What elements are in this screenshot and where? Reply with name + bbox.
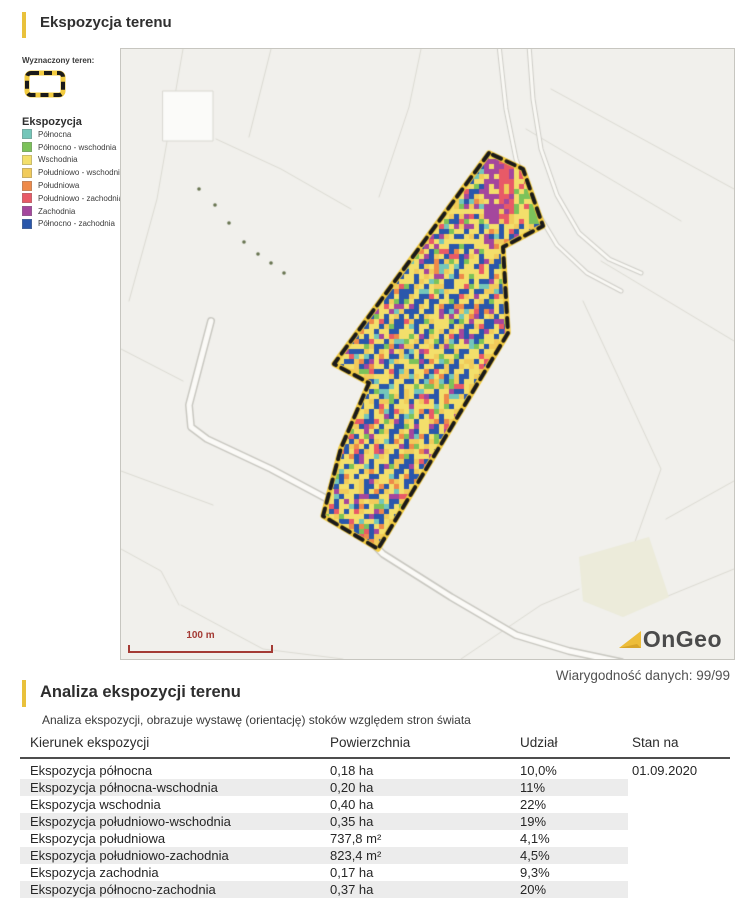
exposure-table: Kierunek ekspozycji Powierzchnia Udział … [20, 733, 730, 898]
legend-item: Północna [22, 128, 118, 141]
legend-item-label: Północno - zachodnia [38, 219, 115, 228]
scale-bar: 100 m [128, 645, 273, 653]
report-page: Ekspozycja terenu Wyznaczony teren: Eksp… [0, 0, 750, 922]
table-row: Ekspozycja zachodnia0,17 ha9,3% [20, 864, 730, 881]
ongeo-logo-text: OnGeo [643, 627, 722, 651]
column-header-share: Udział [520, 735, 558, 750]
legend-item-label: Wschodnia [38, 155, 78, 164]
table-row: Ekspozycja północna0,18 ha10,0%01.09.202… [20, 762, 730, 779]
cell-share: 10,0% [520, 762, 557, 779]
cell-share: 11% [520, 779, 545, 796]
cell-share: 4,5% [520, 847, 550, 864]
section-subtitle: Analiza ekspozycji, obrazuje wystawę (or… [42, 713, 471, 727]
legend-color-swatch [22, 219, 32, 229]
legend-color-swatch [22, 181, 32, 191]
legend-item: Północno - zachodnia [22, 218, 118, 231]
scale-bar-label: 100 m [130, 630, 271, 641]
legend-color-swatch [22, 129, 32, 139]
legend-item-label: Południowo - zachodnia [38, 194, 123, 203]
cell-area: 0,20 ha [330, 779, 373, 796]
table-row: Ekspozycja południowa737,8 m²4,1% [20, 830, 730, 847]
designated-area-label: Wyznaczony teren: [22, 56, 118, 65]
table-row: Ekspozycja wschodnia0,40 ha22% [20, 796, 730, 813]
cell-area: 0,35 ha [330, 813, 373, 830]
cell-as_of: 01.09.2020 [632, 762, 697, 779]
cell-area: 0,17 ha [330, 864, 373, 881]
title-accent-bar [22, 12, 26, 38]
data-reliability: Wiarygodność danych: 99/99 [556, 668, 730, 683]
ongeo-logo-icon [617, 627, 643, 651]
legend-color-swatch [22, 155, 32, 165]
legend-color-swatch [22, 142, 32, 152]
legend-item-label: Południowo - wschodnia [38, 168, 124, 177]
cell-area: 0,37 ha [330, 881, 373, 898]
cell-direction: Ekspozycja północna-wschodnia [30, 779, 218, 796]
legend-items: PółnocnaPółnocno - wschodniaWschodniaPoł… [22, 128, 118, 230]
legend-item: Północno - wschodnia [22, 141, 118, 154]
legend-item: Wschodnia [22, 154, 118, 167]
cell-direction: Ekspozycja północna [30, 762, 152, 779]
page-title: Ekspozycja terenu [40, 14, 172, 31]
legend-item-label: Południowa [38, 181, 79, 190]
column-header-area: Powierzchnia [330, 735, 410, 750]
cell-area: 737,8 m² [330, 830, 381, 847]
legend-color-swatch [22, 206, 32, 216]
section-accent-bar [22, 680, 26, 707]
legend-item: Południowo - wschodnia [22, 166, 118, 179]
legend-item-label: Zachodnia [38, 207, 75, 216]
table-row: Ekspozycja południowo-zachodnia823,4 m²4… [20, 847, 730, 864]
table-row: Ekspozycja północna-wschodnia0,20 ha11% [20, 779, 730, 796]
ongeo-logo: OnGeo [617, 627, 722, 651]
legend-item-label: Północno - wschodnia [38, 143, 116, 152]
cell-direction: Ekspozycja północno-zachodnia [30, 881, 216, 898]
table-row: Ekspozycja północno-zachodnia0,37 ha20% [20, 881, 730, 898]
cell-share: 20% [520, 881, 546, 898]
cell-direction: Ekspozycja zachodnia [30, 864, 159, 881]
cell-share: 9,3% [520, 864, 550, 881]
table-row: Ekspozycja południowo-wschodnia0,35 ha19… [20, 813, 730, 830]
cell-area: 0,40 ha [330, 796, 373, 813]
column-header-asof: Stan na [632, 735, 679, 750]
cell-share: 22% [520, 796, 546, 813]
legend-title: Ekspozycja [22, 116, 118, 128]
legend-item: Zachodnia [22, 205, 118, 218]
table-header: Kierunek ekspozycji Powierzchnia Udział … [20, 733, 730, 759]
cell-direction: Ekspozycja południowo-wschodnia [30, 813, 231, 830]
designated-area-icon [22, 68, 68, 100]
legend-item: Południowa [22, 179, 118, 192]
cell-share: 19% [520, 813, 546, 830]
cell-share: 4,1% [520, 830, 550, 847]
cell-direction: Ekspozycja wschodnia [30, 796, 161, 813]
cell-direction: Ekspozycja południowa [30, 830, 165, 847]
cell-area: 823,4 m² [330, 847, 381, 864]
map-canvas [121, 49, 734, 659]
map-legend: Wyznaczony teren: Ekspozycja PółnocnaPół… [22, 56, 118, 230]
section-title: Analiza ekspozycji terenu [40, 683, 241, 702]
cell-area: 0,18 ha [330, 762, 373, 779]
legend-item: Południowo - zachodnia [22, 192, 118, 205]
terrain-map: 100 m OnGeo [120, 48, 735, 660]
table-body: Ekspozycja północna0,18 ha10,0%01.09.202… [20, 762, 730, 898]
legend-color-swatch [22, 193, 32, 203]
column-header-direction: Kierunek ekspozycji [30, 735, 149, 750]
cell-direction: Ekspozycja południowo-zachodnia [30, 847, 229, 864]
legend-item-label: Północna [38, 130, 71, 139]
legend-color-swatch [22, 168, 32, 178]
